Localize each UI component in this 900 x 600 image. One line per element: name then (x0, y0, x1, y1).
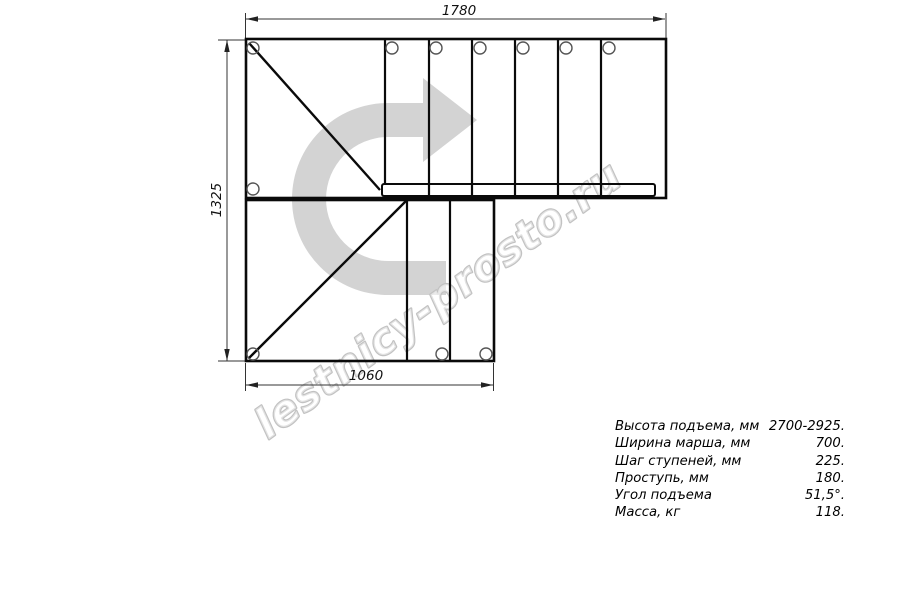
spec-label: Высота подъема, мм (615, 418, 759, 435)
dimension-top-label: 1780 (442, 3, 476, 19)
spec-label: Масса, кг (615, 504, 680, 521)
spec-label: Ширина марша, мм (615, 435, 750, 452)
arrowhead-down-icon (224, 349, 229, 361)
stair-drawing-page: lestnicy-prosto.ru 1780 1325 1060 (0, 0, 900, 600)
spec-value: 2700-2925. (769, 418, 845, 435)
spec-value: 180. (816, 470, 845, 487)
arrowhead-left-icon (246, 16, 258, 21)
spec-value: 51,5°. (805, 487, 845, 504)
spec-row: Масса, кг 118. (615, 504, 845, 521)
spec-value: 700. (816, 435, 845, 452)
dimension-bottom-label: 1060 (349, 368, 383, 384)
arrowhead-right-icon (481, 382, 493, 387)
spec-value: 225. (816, 453, 845, 470)
spec-label: Проступь, мм (615, 470, 709, 487)
spec-row: Шаг ступеней, мм 225. (615, 453, 845, 470)
spec-row: Высота подъема, мм 2700-2925. (615, 418, 845, 435)
arrowhead-up-icon (224, 40, 229, 52)
spec-label: Угол подъема (615, 487, 712, 504)
spec-table: Высота подъема, мм 2700-2925. Ширина мар… (615, 418, 845, 522)
spec-row: Проступь, мм 180. (615, 470, 845, 487)
spec-row: Угол подъема 51,5°. (615, 487, 845, 504)
spec-value: 118. (816, 504, 845, 521)
arrowhead-left-icon (246, 382, 258, 387)
spec-row: Ширина марша, мм 700. (615, 435, 845, 452)
dimension-left-label: 1325 (209, 183, 225, 217)
spec-label: Шаг ступеней, мм (615, 453, 741, 470)
arrowhead-right-icon (653, 16, 665, 21)
